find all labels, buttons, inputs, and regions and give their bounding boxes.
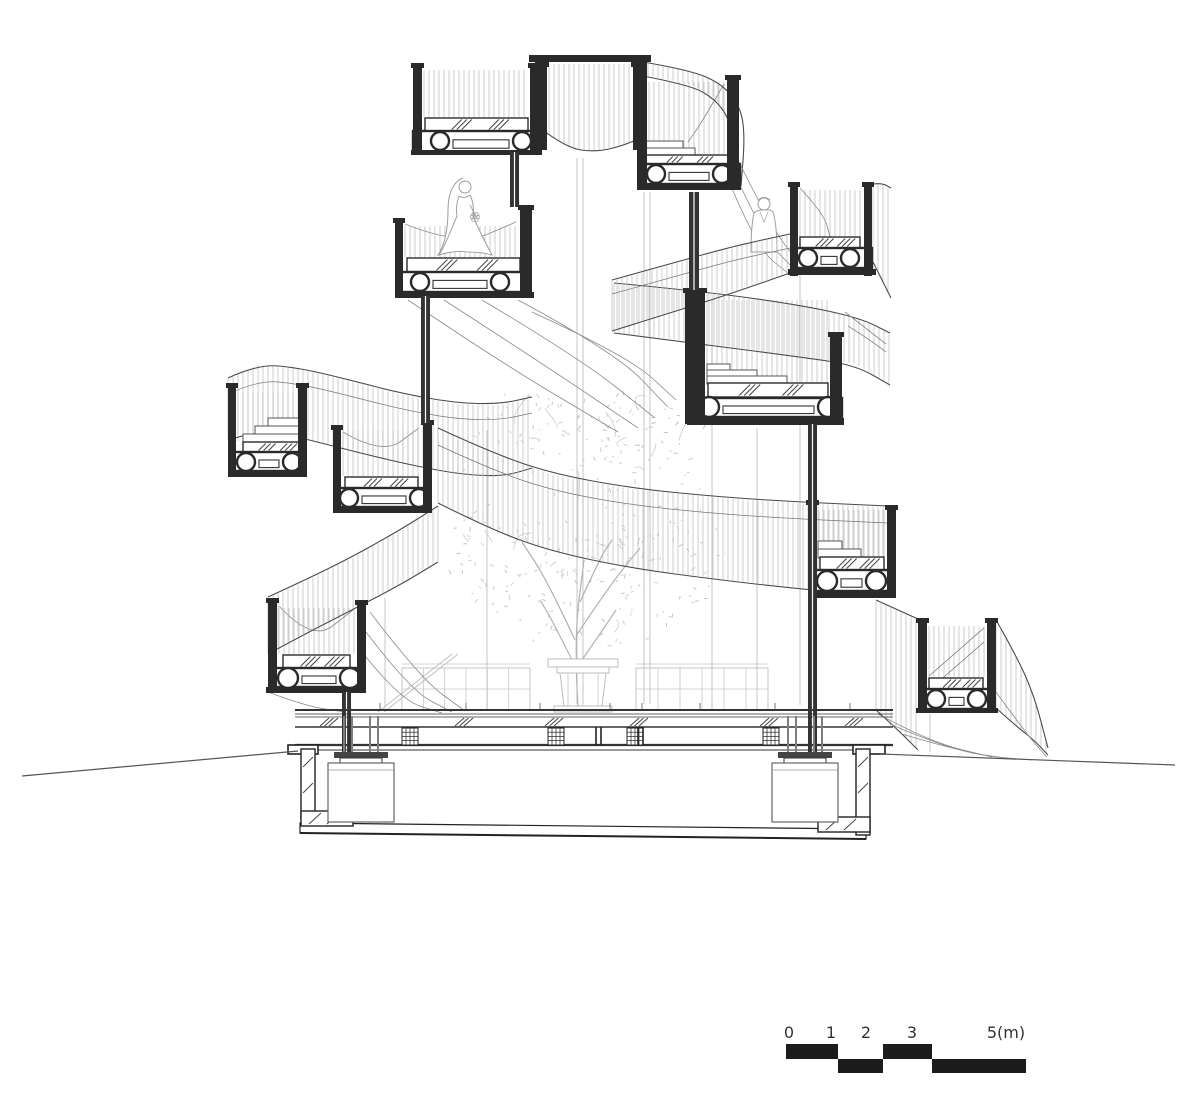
groom-figure: [751, 198, 777, 253]
tree-planter: [548, 659, 618, 712]
bride-head: [459, 181, 471, 193]
wheel-roller: [968, 690, 986, 708]
stair-tower-interior: [537, 64, 643, 151]
ground-floor-deck: [295, 710, 893, 750]
wheel-roller: [431, 132, 449, 150]
footing-pedestal: [772, 716, 838, 822]
groom-head: [758, 198, 770, 210]
architectural-section-page: 01235(m): [0, 0, 1200, 1110]
wheel-roller: [866, 571, 886, 591]
ramp-band-final-descent: [996, 620, 1048, 755]
balcony-top-left: [411, 63, 542, 155]
wheel-roller: [841, 249, 859, 267]
wheel-roller: [927, 690, 945, 708]
wheel-roller: [411, 273, 429, 291]
wheel-roller: [647, 165, 665, 183]
balcony-mid-left-1: [226, 383, 309, 477]
footing-pedestal: [328, 716, 394, 822]
wheel-roller: [817, 571, 837, 591]
scale-label: 0: [784, 1023, 794, 1042]
balcony-top-left-interior: [424, 70, 524, 117]
balcony-groom: [788, 182, 876, 276]
scale-label: 2: [861, 1023, 871, 1042]
scale-label: 5(m): [987, 1023, 1025, 1042]
wheel-roller: [278, 668, 298, 688]
wheel-roller: [491, 273, 509, 291]
ground-lines: [22, 751, 1175, 776]
scale-label: 3: [907, 1023, 917, 1042]
balcony-groom-interior: [800, 188, 860, 237]
bride-figure: [438, 178, 492, 255]
section-drawing: 01235(m): [0, 0, 1200, 1110]
scale-bar-segment: [786, 1044, 838, 1059]
scale-bar-segment: [838, 1059, 883, 1073]
scale-label: 1: [826, 1023, 836, 1042]
wheel-roller: [513, 132, 531, 150]
scale-bar-segment: [883, 1044, 932, 1059]
foundation: [288, 716, 885, 839]
ramp-band-right-of-groom: [873, 184, 891, 298]
wheel-roller: [340, 489, 358, 507]
scale-bar: 01235(m): [784, 1023, 1026, 1073]
wheel-roller: [799, 249, 817, 267]
ramp-band-to-left-bottom: [268, 506, 438, 654]
scale-bar-segment: [932, 1059, 1026, 1073]
wheel-roller: [237, 453, 255, 471]
stair-tower: [529, 55, 651, 150]
balcony-left-bottom: [266, 598, 368, 693]
